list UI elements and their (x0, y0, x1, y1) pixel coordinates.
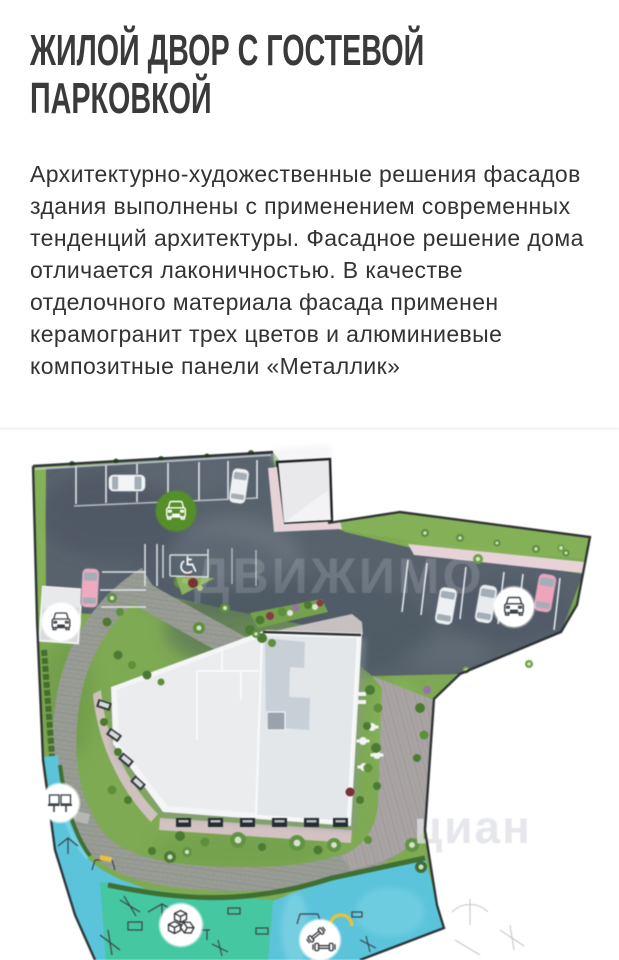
svg-text:ДВИЖИМО: ДВИЖИМО (194, 548, 484, 604)
svg-text:циан: циан (414, 801, 532, 853)
